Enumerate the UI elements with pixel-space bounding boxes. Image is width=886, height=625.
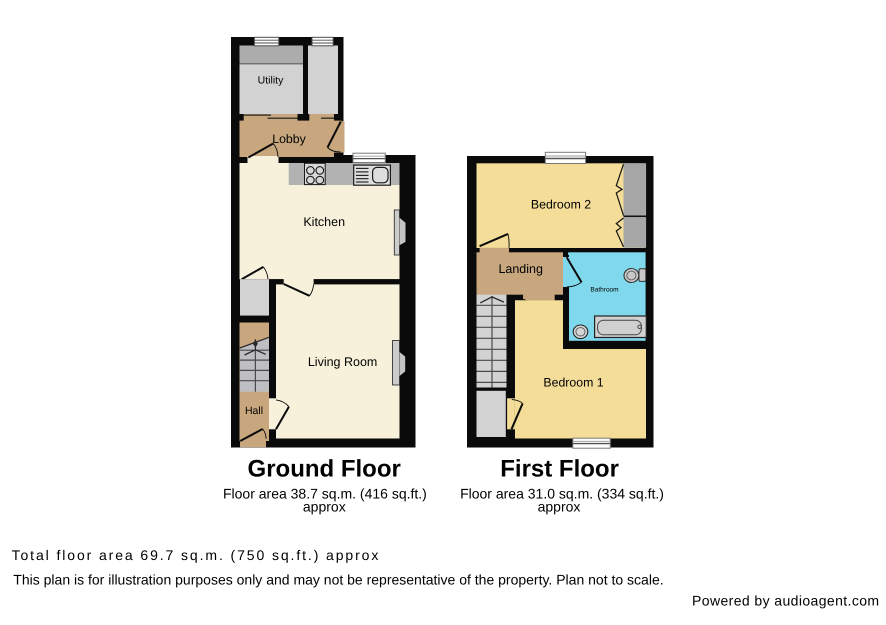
svg-text:Bathroom: Bathroom <box>590 287 618 294</box>
svg-text:First Floor: First Floor <box>500 456 619 483</box>
svg-text:Bedroom 2: Bedroom 2 <box>531 198 591 212</box>
svg-text:This plan is for illustration: This plan is for illustration purposes o… <box>13 572 663 588</box>
svg-text:Living Room: Living Room <box>308 355 377 369</box>
svg-text:Powered by audioagent.com: Powered by audioagent.com <box>692 593 879 609</box>
svg-text:Total floor area 69.7 sq.m. (7: Total floor area 69.7 sq.m. (750 sq.ft.)… <box>12 547 381 563</box>
svg-text:Bedroom 1: Bedroom 1 <box>543 376 603 390</box>
svg-text:Landing: Landing <box>498 262 543 276</box>
svg-text:Lobby: Lobby <box>272 132 306 146</box>
svg-text:Hall: Hall <box>245 405 263 417</box>
svg-text:approx: approx <box>303 499 346 515</box>
svg-text:approx: approx <box>538 499 581 515</box>
svg-text:Utility: Utility <box>258 75 284 87</box>
svg-text:Kitchen: Kitchen <box>303 215 345 229</box>
svg-text:Ground Floor: Ground Floor <box>248 456 401 483</box>
